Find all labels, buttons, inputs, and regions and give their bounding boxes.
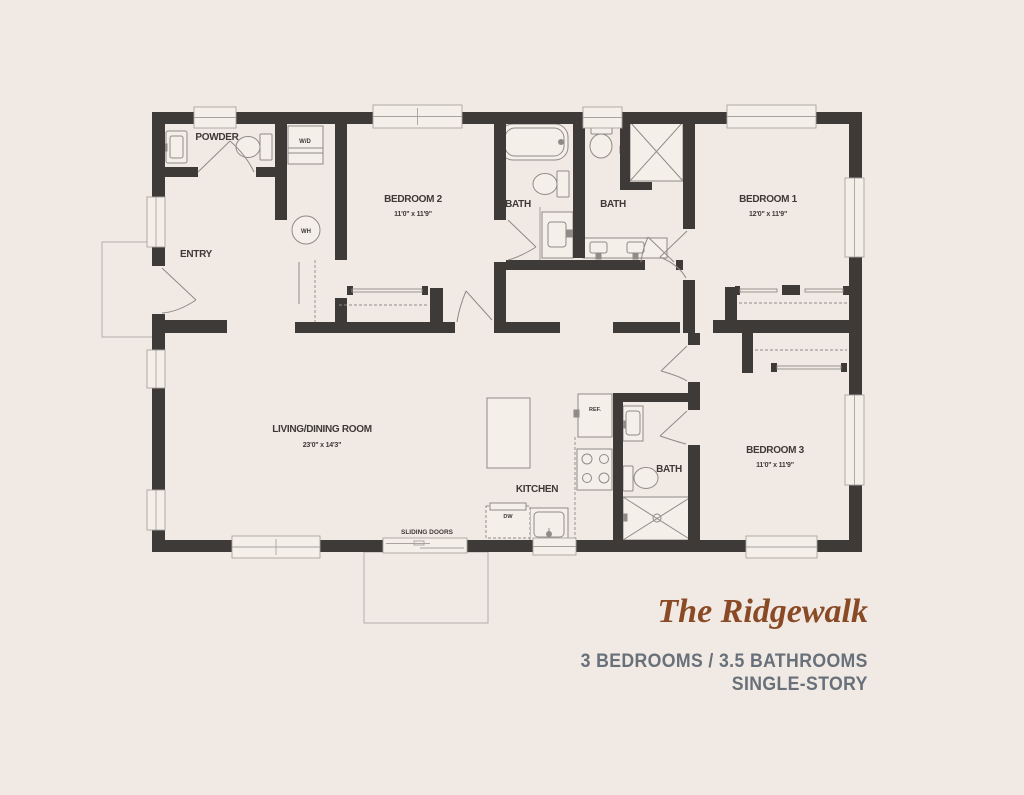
closet-rod bbox=[352, 289, 422, 292]
shower bbox=[621, 497, 691, 540]
room-dims-bedroom1: 12'0" x 11'9" bbox=[749, 211, 787, 218]
toilet bbox=[623, 466, 658, 491]
room-label-bath1: BATH bbox=[505, 199, 531, 210]
room-label-bath2: BATH bbox=[600, 199, 626, 210]
room-label-bedroom2: BEDROOM 2 bbox=[384, 194, 443, 205]
door-swing bbox=[457, 291, 492, 322]
closet-rod bbox=[805, 289, 843, 292]
entry-porch bbox=[102, 242, 153, 337]
window bbox=[147, 197, 165, 247]
door-swing bbox=[661, 346, 687, 381]
refrigerator bbox=[574, 394, 612, 437]
front-door-opening bbox=[151, 266, 166, 314]
dishwasher bbox=[486, 503, 530, 538]
plan-subtitle: 3 BEDROOMS / 3.5 BATHROOMS SINGLE-STORY bbox=[581, 650, 868, 696]
floor-plan: POWDER ENTRY BEDROOM 2 11'0" x 11'9" BAT… bbox=[0, 0, 1024, 795]
room-label-bedroom1: BEDROOM 1 bbox=[739, 194, 798, 205]
window bbox=[746, 536, 817, 558]
vanity-sink bbox=[621, 406, 643, 441]
double-vanity bbox=[583, 238, 667, 259]
plan-subtitle-line1: 3 BEDROOMS / 3.5 BATHROOMS bbox=[581, 650, 868, 673]
vanity-sink bbox=[540, 207, 573, 260]
rear-deck bbox=[364, 552, 488, 623]
toilet bbox=[590, 124, 612, 158]
walls bbox=[152, 112, 862, 552]
window bbox=[845, 395, 864, 485]
closet-rod bbox=[777, 366, 841, 369]
water-heater-label: WH bbox=[301, 229, 311, 235]
window bbox=[373, 105, 462, 128]
room-label-kitchen: KITCHEN bbox=[516, 484, 558, 495]
refrigerator-label: REF. bbox=[589, 407, 601, 413]
room-label-bath3: BATH bbox=[656, 464, 682, 475]
washer-dryer bbox=[288, 126, 323, 164]
room-dims-bedroom2: 11'0" x 11'9" bbox=[394, 211, 432, 218]
window bbox=[845, 178, 864, 257]
range-stove bbox=[577, 449, 612, 490]
plan-title: The Ridgewalk bbox=[657, 593, 868, 631]
window bbox=[533, 538, 576, 555]
washer-dryer-label: W/D bbox=[299, 139, 311, 145]
room-label-entry: ENTRY bbox=[180, 249, 213, 260]
room-dims-living: 23'0" x 14'3" bbox=[303, 442, 342, 449]
sliding-door bbox=[383, 538, 467, 553]
room-label-powder: POWDER bbox=[195, 132, 239, 143]
plan-subtitle-line2: SINGLE-STORY bbox=[581, 673, 868, 696]
room-label-bedroom3: BEDROOM 3 bbox=[746, 445, 805, 456]
plan-labels: POWDER ENTRY BEDROOM 2 11'0" x 11'9" BAT… bbox=[180, 132, 805, 536]
bathtub bbox=[500, 124, 568, 160]
window bbox=[147, 490, 165, 530]
door-swing bbox=[508, 220, 536, 260]
floor-plan-page: POWDER ENTRY BEDROOM 2 11'0" x 11'9" BAT… bbox=[0, 0, 1024, 795]
pedestal-sink bbox=[162, 131, 187, 163]
room-label-living: LIVING/DINING ROOM bbox=[272, 424, 372, 435]
window bbox=[727, 105, 816, 128]
sliding-doors-label: SLIDING DOORS bbox=[401, 529, 454, 536]
toilet bbox=[236, 134, 272, 160]
window bbox=[194, 107, 236, 128]
toilet bbox=[533, 171, 569, 197]
dishwasher-label: DW bbox=[503, 514, 513, 520]
window bbox=[232, 536, 320, 558]
window bbox=[583, 107, 622, 128]
closet-rod bbox=[740, 289, 777, 292]
room-dims-bedroom3: 11'0" x 11'9" bbox=[756, 462, 794, 469]
door-swing bbox=[162, 268, 196, 313]
door-swing bbox=[660, 411, 687, 444]
kitchen-island bbox=[487, 398, 530, 468]
kitchen-sink bbox=[530, 508, 568, 541]
window bbox=[147, 350, 165, 388]
